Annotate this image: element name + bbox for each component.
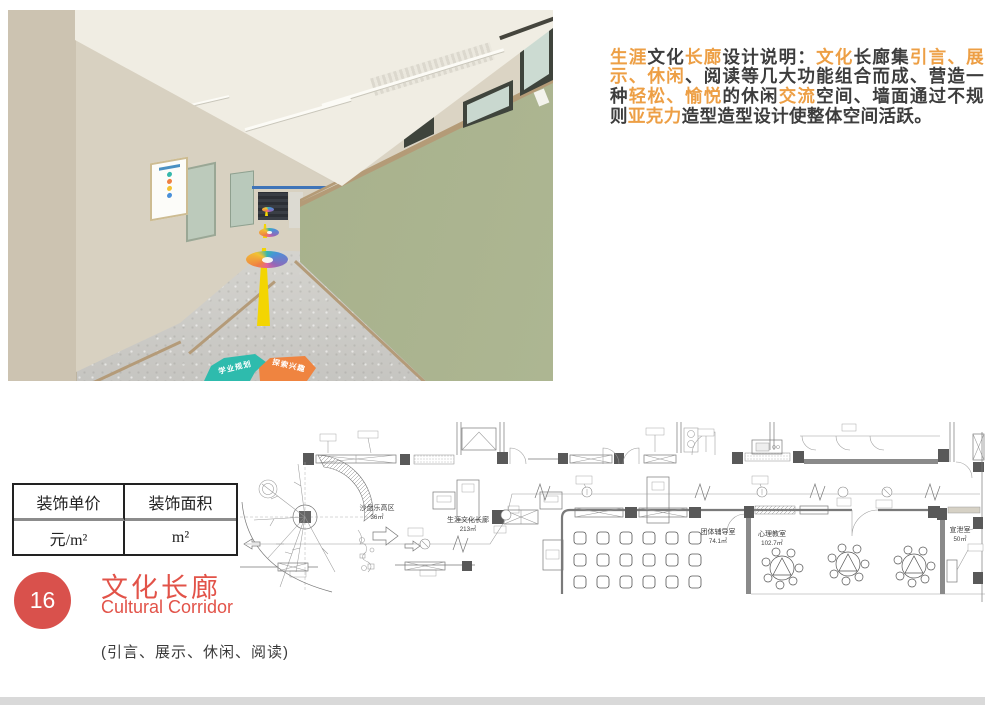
desc-segment: 轻松、愉悦	[629, 86, 723, 106]
table-header-unit-price: 装饰单价	[14, 485, 125, 521]
corridor-end-led-strip	[252, 186, 326, 189]
label-corridor-area: 213㎡	[460, 525, 477, 533]
label-psych-room-area: 102.7㎡	[761, 539, 783, 547]
table-value-area: m²	[125, 521, 236, 554]
unit-price-table: 装饰单价 装饰面积 元/m² m²	[12, 483, 238, 556]
function-tags: (引言、展示、休闲、阅读)	[101, 641, 289, 662]
desc-segment: 生涯	[610, 47, 647, 67]
table-value-unit-price: 元/m²	[14, 521, 125, 554]
label-group-room-area: 74.1㎡	[709, 537, 728, 545]
design-description: 生涯文化长廊设计说明：文化长廊集引言、展示、休闲、阅读等几大功能组合而成、营造一…	[610, 48, 984, 128]
label-venting-room-area: 50㎡	[953, 535, 967, 543]
linear-light	[245, 98, 352, 132]
floor-plan: 沙盘乐高区 36㎡ 生涯文化长廊 213㎡ 团体辅导室 74.1㎡ 心理教室 1…	[240, 422, 985, 608]
plan-middle-fixtures	[244, 477, 669, 572]
plan-annotation-marks	[290, 424, 983, 577]
wall-glass-board	[230, 170, 254, 227]
label-group-room: 团体辅导室	[701, 527, 736, 536]
desc-segment: 造型造型设计使整体空间活跃。	[682, 106, 933, 126]
page-subtitle: Cultural Corridor	[101, 597, 233, 618]
floor-flower-decal	[259, 228, 279, 237]
plan-tree-area	[240, 455, 475, 592]
floor-flower-decal	[262, 207, 274, 212]
corridor-photo: 学业规划 探索兴趣	[8, 10, 553, 381]
floor-flower-decal	[246, 251, 288, 268]
wall-poster	[150, 157, 188, 222]
desc-segment: 交流	[779, 86, 816, 106]
label-sandbox-area: 36㎡	[370, 513, 384, 521]
desc-segment: 亚克力	[628, 106, 682, 126]
desc-segment: 文化	[647, 47, 684, 67]
label-corridor: 生涯文化长廊	[447, 515, 489, 524]
desc-segment: 长廊集	[854, 47, 910, 67]
table-header-area: 装饰面积	[125, 485, 236, 521]
wall-glass-board	[186, 162, 216, 242]
plan-room-group-counseling	[543, 507, 745, 594]
label-sandbox: 沙盘乐高区	[360, 503, 395, 512]
plan-room-psych-classroom	[744, 506, 985, 594]
desc-segment: 文化	[816, 47, 853, 67]
label-psych-room: 心理教室	[758, 529, 786, 538]
label-venting-room: 宣泄室	[950, 525, 971, 534]
desc-segment: 设计说明：	[722, 47, 816, 67]
desc-segment: 长廊	[685, 47, 722, 67]
corridor-end-display-wall	[258, 192, 288, 220]
index-badge: 16	[14, 572, 71, 629]
plan-top-walls	[303, 422, 984, 602]
desc-segment: 的休闲	[722, 86, 778, 106]
plan-corridor-centerline	[246, 484, 980, 552]
corridor-left-wall-near	[8, 10, 77, 381]
footer-divider	[0, 697, 985, 705]
